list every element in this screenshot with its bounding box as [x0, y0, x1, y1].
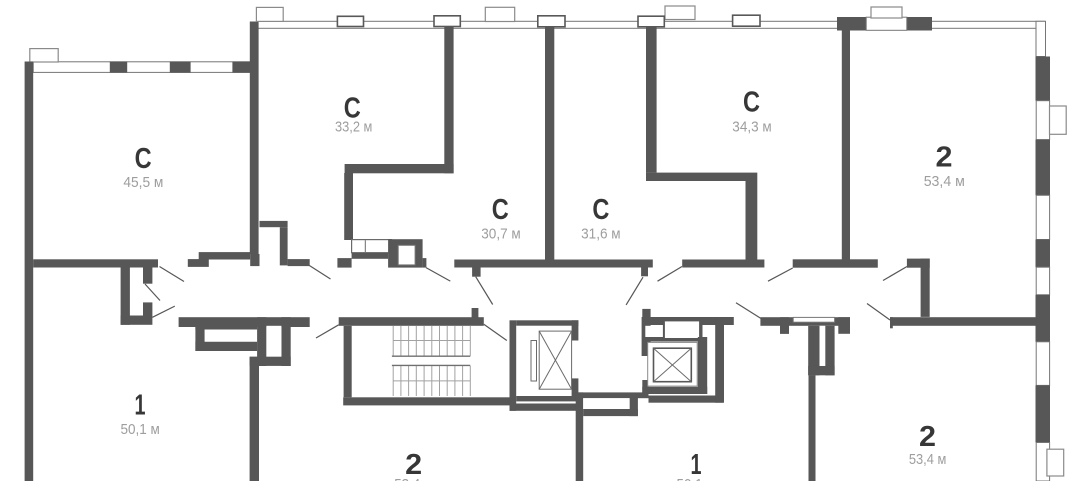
svg-text:50,1 м: 50,1 м: [121, 421, 160, 438]
svg-text:С: С: [743, 86, 760, 118]
svg-text:50,1 м: 50,1 м: [677, 476, 716, 481]
svg-text:34,3 м: 34,3 м: [732, 119, 771, 136]
svg-text:30,7 м: 30,7 м: [481, 225, 521, 242]
svg-text:53,4 м: 53,4 м: [394, 476, 433, 481]
svg-text:2: 2: [936, 141, 953, 173]
svg-text:45,5 м: 45,5 м: [123, 174, 163, 191]
svg-text:С: С: [592, 194, 609, 226]
svg-text:С: С: [135, 143, 152, 175]
svg-text:2: 2: [919, 421, 936, 453]
svg-text:53,4 м: 53,4 м: [909, 451, 947, 468]
svg-text:1: 1: [135, 389, 146, 421]
svg-text:31,6 м: 31,6 м: [581, 225, 621, 242]
svg-text:33,2 м: 33,2 м: [335, 119, 372, 136]
svg-text:С: С: [492, 194, 509, 226]
svg-text:53,4 м: 53,4 м: [924, 173, 965, 190]
